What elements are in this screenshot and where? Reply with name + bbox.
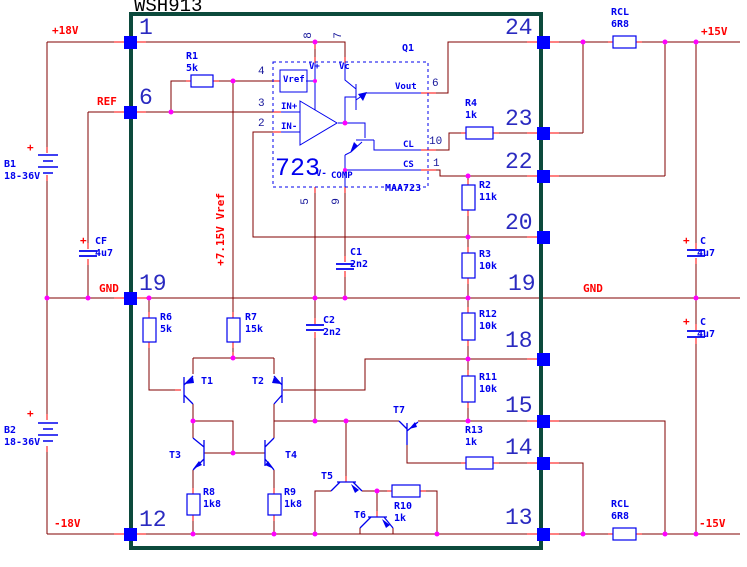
- regulator-pinnum-5: 5: [301, 198, 312, 205]
- regulator-pinnum-8: 8: [304, 32, 315, 39]
- resistor-rcl-bottom[interactable]: [613, 528, 636, 540]
- regulator-part-number: MAA723: [385, 184, 421, 194]
- pin-pad-15[interactable]: [537, 415, 550, 428]
- resistor-r3-name: R3: [479, 250, 491, 260]
- regulator-pin-cs: CS: [403, 161, 414, 170]
- transistor-t1-label: T1: [201, 377, 213, 387]
- resistor-rcl-top[interactable]: [613, 36, 636, 48]
- regulator-pinnum-7: 7: [334, 32, 345, 39]
- regulator-pinnum-2: 2: [258, 119, 265, 130]
- pin-pad-18[interactable]: [537, 353, 550, 366]
- package-pin-14: 14: [505, 437, 533, 460]
- resistor-r6-value: 5k: [160, 325, 172, 335]
- resistor-r8-name: R8: [203, 488, 215, 498]
- regulator-pinnum-3: 3: [258, 99, 265, 110]
- transistor-t3-label: T3: [169, 451, 181, 461]
- resistor-r2-name: R2: [479, 181, 491, 191]
- resistor-r1[interactable]: [191, 75, 213, 87]
- pass-transistor-arrow-icon: [358, 92, 367, 101]
- resistor-rcl-top-name: RCL: [611, 8, 629, 18]
- transistor-t4-label: T4: [285, 451, 297, 461]
- capacitor-cf-name: CF: [95, 237, 107, 247]
- battery-b1[interactable]: [38, 155, 58, 173]
- regulator-designator: Q1: [402, 44, 414, 54]
- resistor-r8-value: 1k8: [203, 500, 221, 510]
- battery-b2-name: B2: [4, 426, 16, 436]
- pin-pad-19[interactable]: [124, 292, 137, 305]
- resistor-r6[interactable]: [143, 318, 156, 342]
- resistor-rcl-bottom-value: 6R8: [611, 512, 629, 522]
- transistor-t2-label: T2: [252, 377, 264, 387]
- pin-pad-14[interactable]: [537, 457, 550, 470]
- net-label-plus15v: +15V: [701, 26, 728, 37]
- regulator-pinnum-10: 10: [429, 137, 442, 148]
- regulator-pinnum-6: 6: [432, 79, 439, 90]
- package-pin-24: 24: [505, 17, 533, 40]
- pin-pad-24[interactable]: [537, 36, 550, 49]
- resistor-r12-name: R12: [479, 310, 497, 320]
- capacitor-ctop-name: C: [700, 237, 706, 247]
- pin-pad-20[interactable]: [537, 231, 550, 244]
- resistor-r7-name: R7: [245, 313, 257, 323]
- regulator-pin-inn: IN-: [281, 123, 297, 132]
- transistor-t7-label: T7: [393, 406, 405, 416]
- pin-pad-6[interactable]: [124, 106, 137, 119]
- opamp-triangle: [300, 101, 337, 145]
- capacitor-c1-name: C1: [350, 248, 362, 258]
- resistor-r13[interactable]: [466, 457, 493, 469]
- package-pin-23: 23: [505, 108, 533, 131]
- regulator-pin-vc: Vc: [339, 63, 350, 72]
- resistor-r10-name: R10: [394, 502, 412, 512]
- resistor-r2-value: 11k: [479, 193, 497, 203]
- capacitor-cbottom-name: C: [700, 318, 706, 328]
- regulator-pin-inp: IN+: [281, 103, 297, 112]
- resistor-r4-name: R4: [465, 99, 477, 109]
- capacitor-c2[interactable]: [306, 325, 324, 330]
- capacitor-ctop-plus: +: [683, 235, 690, 246]
- net-label-vref-line: +7.15V Vref: [215, 193, 226, 266]
- resistor-r3-value: 10k: [479, 262, 497, 272]
- resistor-r10[interactable]: [392, 485, 420, 497]
- pin-pad-23[interactable]: [537, 127, 550, 140]
- resistor-r12[interactable]: [462, 313, 475, 340]
- transistor-t6-label: T6: [354, 511, 366, 521]
- regulator-pinnum-9: 9: [332, 198, 343, 205]
- regulator-pin-vplus: V+: [309, 63, 320, 72]
- package-pin-19-right: 19: [508, 273, 536, 296]
- regulator-pin-vminus: V-: [316, 170, 327, 179]
- resistor-rcl-top-value: 6R8: [611, 20, 629, 30]
- pin-pad-13[interactable]: [537, 528, 550, 541]
- package-pin-12: 12: [139, 509, 167, 532]
- net-label-plus18v: +18V: [52, 25, 79, 36]
- page-title: WSH913: [134, 0, 202, 16]
- capacitor-cbottom-plus: +: [683, 316, 690, 327]
- package-pin-22: 22: [505, 151, 533, 174]
- resistor-r1-value: 5k: [186, 64, 198, 74]
- capacitor-cf-value: 4u7: [95, 249, 113, 259]
- resistor-r9[interactable]: [268, 494, 281, 515]
- regulator-pinnum-1: 1: [433, 159, 440, 170]
- capacitor-c1-value: 2n2: [350, 260, 368, 270]
- resistor-r6-name: R6: [160, 313, 172, 323]
- regulator-big-723: 723: [275, 156, 320, 181]
- capacitor-c2-value: 2n2: [323, 328, 341, 338]
- pin-pad-22[interactable]: [537, 170, 550, 183]
- resistor-r11-name: R11: [479, 373, 497, 383]
- resistor-r4-value: 1k: [465, 111, 477, 121]
- net-label-minus18v: -18V: [54, 518, 81, 529]
- battery-b1-plus: +: [27, 142, 34, 153]
- capacitor-cf-plus: +: [80, 235, 87, 246]
- package-pin-19-left: 19: [139, 273, 167, 296]
- resistor-r13-name: R13: [465, 426, 483, 436]
- pin-pad-12[interactable]: [124, 528, 137, 541]
- battery-b2-plus: +: [27, 408, 34, 419]
- capacitor-ctop-value: 4u7: [697, 249, 715, 259]
- resistor-r13-value: 1k: [465, 438, 477, 448]
- net-label-minus15v: -15V: [699, 518, 726, 529]
- net-label-gnd-left: GND: [99, 283, 119, 294]
- capacitor-cbottom-value: 4u7: [697, 330, 715, 340]
- transistor-t5-label: T5: [321, 472, 333, 482]
- schematic-canvas: WSH913 +18V -18V REF GND GND +15V -15V +…: [0, 0, 747, 567]
- battery-b2[interactable]: [38, 423, 58, 441]
- resistor-r4[interactable]: [466, 127, 493, 139]
- battery-b1-value: 18-36V: [4, 172, 40, 182]
- resistor-r7[interactable]: [227, 318, 240, 342]
- resistor-r7-value: 15k: [245, 325, 263, 335]
- regulator-pinnum-4: 4: [258, 67, 265, 78]
- limit-transistor-arrow-icon: [350, 142, 358, 153]
- battery-b2-value: 18-36V: [4, 438, 40, 448]
- net-label-gnd-right: GND: [583, 283, 603, 294]
- package-pin-1: 1: [139, 17, 153, 40]
- resistor-r3[interactable]: [462, 253, 475, 278]
- resistor-rcl-bottom-name: RCL: [611, 500, 629, 510]
- pin-pad-1[interactable]: [124, 36, 137, 49]
- resistor-r1-name: R1: [186, 52, 198, 62]
- resistor-r2[interactable]: [462, 185, 475, 210]
- resistor-r9-value: 1k8: [284, 500, 302, 510]
- capacitor-c2-name: C2: [323, 316, 335, 326]
- resistor-r11-value: 10k: [479, 385, 497, 395]
- regulator-pin-cl: CL: [403, 141, 414, 150]
- package-pin-13: 13: [505, 507, 533, 530]
- resistor-r8[interactable]: [187, 494, 200, 515]
- resistor-r11[interactable]: [462, 376, 475, 402]
- package-pin-15: 15: [505, 395, 533, 418]
- resistor-r10-value: 1k: [394, 514, 406, 524]
- battery-b1-name: B1: [4, 160, 16, 170]
- package-pin-18: 18: [505, 330, 533, 353]
- regulator-pin-vref: Vref: [283, 76, 305, 85]
- resistor-r9-name: R9: [284, 488, 296, 498]
- regulator-pin-comp: COMP: [331, 172, 353, 181]
- net-label-ref: REF: [97, 96, 117, 107]
- regulator-pin-vout: Vout: [395, 83, 417, 92]
- package-pin-20: 20: [505, 212, 533, 235]
- capacitor-symbols[interactable]: [79, 250, 705, 337]
- resistor-r12-value: 10k: [479, 322, 497, 332]
- package-pin-6: 6: [139, 87, 153, 110]
